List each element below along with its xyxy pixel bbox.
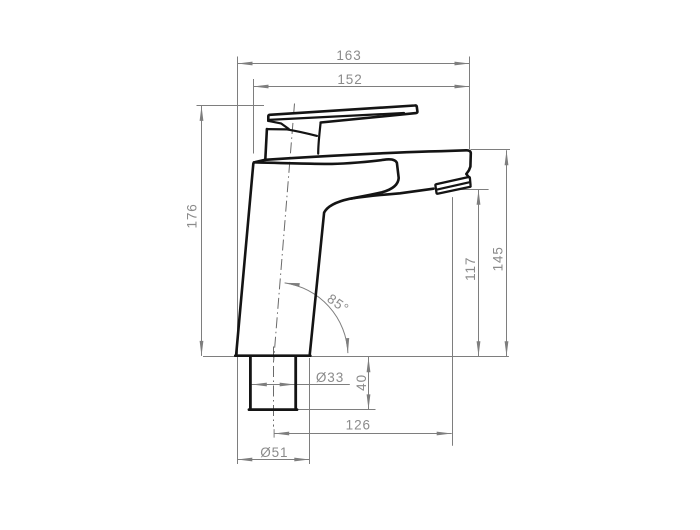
svg-text:163: 163 [336,48,361,63]
svg-text:85°: 85° [324,291,352,317]
svg-text:145: 145 [490,246,505,271]
svg-text:Ø51: Ø51 [260,445,288,460]
svg-text:152: 152 [337,72,362,87]
svg-text:176: 176 [184,203,199,228]
svg-text:Ø33: Ø33 [316,370,344,385]
svg-text:117: 117 [463,257,478,281]
svg-text:126: 126 [346,418,371,433]
svg-text:40: 40 [354,374,369,391]
